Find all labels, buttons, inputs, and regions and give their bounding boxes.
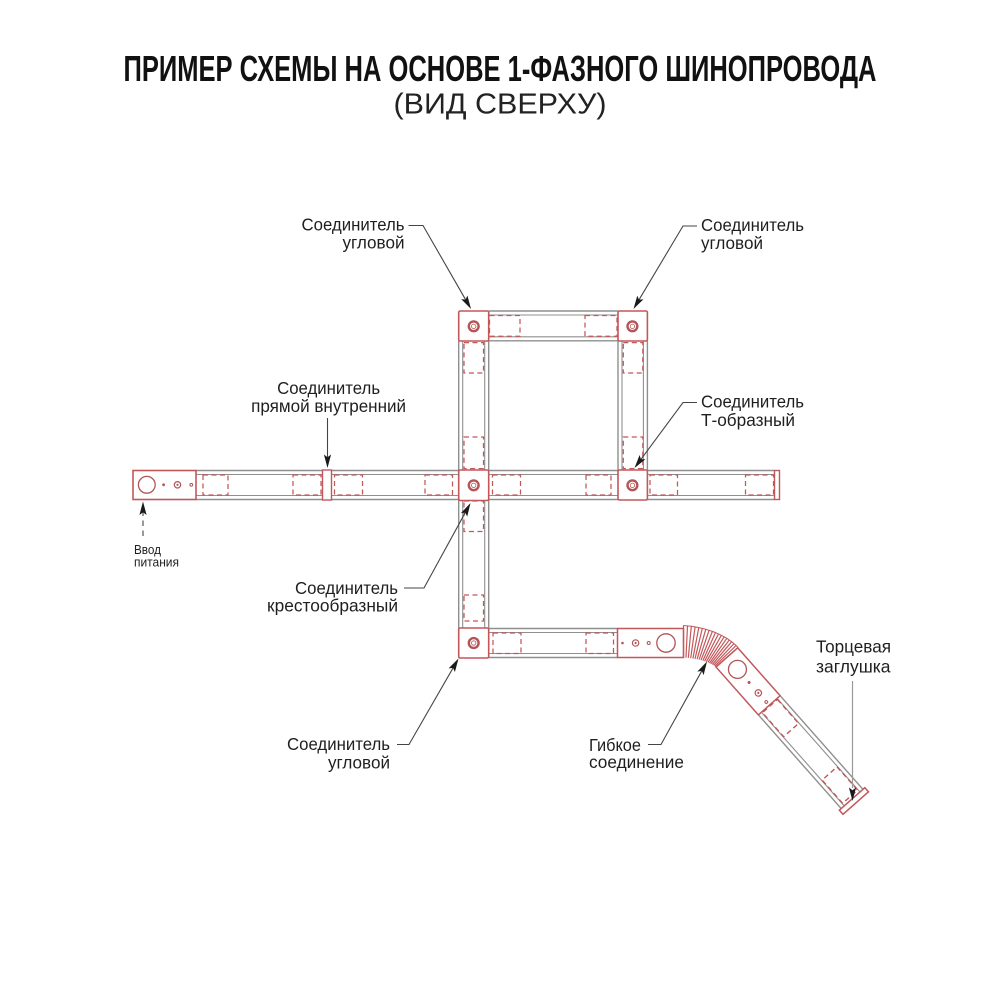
svg-text:заглушка: заглушка [816, 657, 891, 677]
svg-text:угловой: угловой [343, 233, 405, 253]
svg-text:питания: питания [134, 555, 179, 570]
svg-text:Соединитель: Соединитель [302, 215, 405, 235]
svg-text:прямой внутренний: прямой внутренний [251, 396, 406, 416]
svg-text:соединение: соединение [589, 752, 684, 772]
svg-text:Т-образный: Т-образный [701, 410, 795, 430]
svg-text:Соединитель: Соединитель [287, 734, 390, 754]
svg-text:Соединитель: Соединитель [277, 378, 380, 398]
svg-text:ПРИМЕР СХЕМЫ НА ОСНОВЕ 1-ФАЗНО: ПРИМЕР СХЕМЫ НА ОСНОВЕ 1-ФАЗНОГО ШИНОПРО… [124, 48, 877, 89]
svg-text:Соединитель: Соединитель [701, 392, 804, 412]
svg-text:(ВИД СВЕРХУ): (ВИД СВЕРХУ) [394, 89, 607, 121]
svg-text:угловой: угловой [328, 753, 390, 773]
svg-text:Соединитель: Соединитель [701, 215, 804, 235]
svg-text:Торцевая: Торцевая [816, 637, 891, 657]
svg-text:крестообразный: крестообразный [267, 596, 398, 616]
svg-text:угловой: угловой [701, 233, 763, 253]
